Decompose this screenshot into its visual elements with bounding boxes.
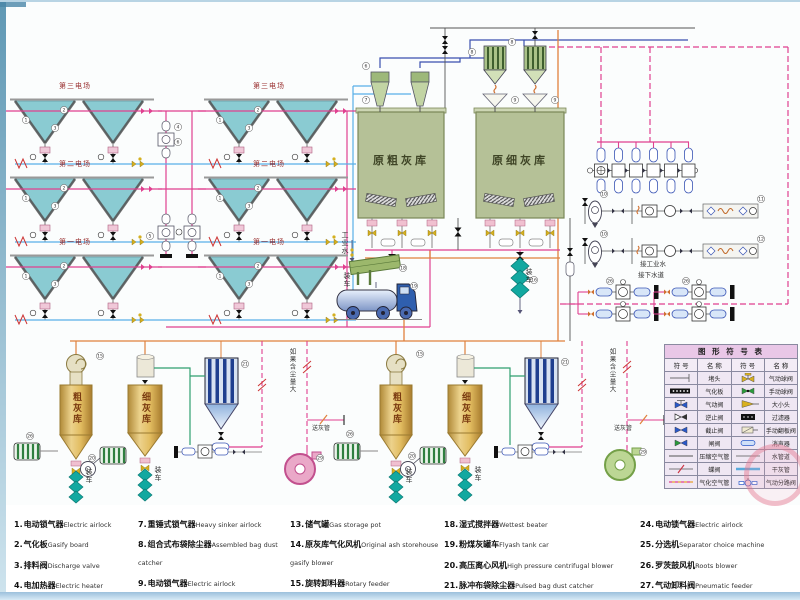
label-load-1: 装车	[84, 468, 94, 484]
manual-flap-valve-symbol	[731, 424, 764, 437]
equipment-list-col-5: 24.电动锁气器Electric airlock25.分选机Separator …	[640, 513, 798, 600]
label-coarse-bin-1: 粗灰库	[70, 392, 83, 425]
svg-text:11: 11	[758, 197, 764, 203]
pneumatic-valve-symbol	[665, 398, 698, 411]
svg-text:1: 1	[25, 196, 28, 202]
equipment-list-item: 7.重锤式锁气器Heavy sinker airlock	[138, 513, 288, 531]
equipment-list-item: 10罗茨真空泵Roots vacuum pump	[138, 592, 288, 600]
equipment-list-item: 18.湿式搅拌器Wettest beater	[444, 513, 638, 531]
equipment-list-item: 22.旋转供料器Rotary feeder	[444, 595, 638, 600]
equipment-list-item: 3.排料阀Discharge valve	[14, 554, 134, 572]
svg-text:21: 21	[242, 362, 248, 368]
svg-text:1: 1	[219, 274, 222, 280]
equipment-list-item: 1.电动锁气器Electric airlock	[14, 513, 134, 531]
compressed-air-pipe-symbol	[665, 450, 698, 463]
legend-name: 手动翻板阀	[764, 424, 797, 437]
equipment-list-item: 8.组合式布袋除尘器Assembled bag dust catcher	[138, 533, 288, 569]
equipment-list-col-3: 13.储气罐Gas storage pot14.原灰库气化风机Original …	[290, 513, 442, 600]
label-fine-bin-1: 细灰库	[139, 392, 152, 425]
legend-title: 图 形 符 号 表	[665, 345, 798, 359]
manual-ball-valve-symbol	[731, 385, 764, 398]
flow-diagram-page: 1231231231231231234566789891819161011101…	[0, 0, 800, 600]
equipment-list-item: 16.干灰散装机Dry ash bulk machine	[290, 592, 442, 600]
svg-text:1: 1	[25, 274, 28, 280]
svg-text:3: 3	[54, 204, 57, 210]
equipment-list-item: 15.旋转卸料器Rotary feeder	[290, 572, 442, 590]
label-field1-a3: 第一电场	[45, 237, 105, 247]
equipment-list-item: 24.电动锁气器Electric airlock	[640, 513, 798, 531]
legend-name: 气化空气管	[698, 476, 731, 489]
svg-text:12: 12	[758, 237, 764, 243]
svg-text:10: 10	[601, 192, 607, 198]
legend-header-name-2: 名 称	[764, 359, 797, 372]
label-field1-b3: 第一电场	[239, 237, 299, 247]
legend-header-symbol-1: 符 号	[665, 359, 698, 372]
equipment-list-item: 2.气化板Gasify board	[14, 533, 134, 551]
svg-text:8: 8	[471, 50, 474, 56]
equipment-list-item: 9.电动锁气器Electric airlock	[138, 572, 288, 590]
legend-name: 压缩空气管	[698, 450, 731, 463]
check-valve-symbol	[665, 411, 698, 424]
legend-name: 逆止阀	[698, 411, 731, 424]
label-connect-water: 接工业水	[640, 258, 666, 268]
equipment-list-item: 5.灰斗气化风机Ash gasify blower	[14, 595, 134, 600]
label-fine-bin-2: 细灰库	[459, 392, 472, 425]
svg-text:19: 19	[411, 284, 417, 290]
svg-text:20: 20	[89, 456, 95, 462]
equipment-list-col-1: 1.电动锁气器Electric airlock2.气化板Gasify board…	[14, 513, 134, 600]
svg-text:3: 3	[54, 282, 57, 288]
equipment-list-item: 19.粉煤灰罐车Flyash tank car	[444, 533, 638, 551]
svg-text:1: 1	[219, 196, 222, 202]
legend-name: 蝶阀	[698, 463, 731, 476]
label-field3-a1: 第三电场	[45, 81, 105, 91]
svg-text:1: 1	[25, 118, 28, 124]
svg-text:9: 9	[554, 98, 557, 104]
label-load-2: 装车	[153, 466, 163, 482]
equipment-list-item: 26.罗茨鼓风机Roots blower	[640, 554, 798, 572]
stop-valve-symbol	[665, 424, 698, 437]
legend-name: 大小头	[764, 398, 797, 411]
svg-text:2: 2	[257, 108, 260, 114]
label-coarse-store: 原粗灰库	[359, 152, 443, 168]
gasify-air-pipe-symbol	[665, 476, 698, 489]
pneumatic-ball-valve-symbol	[731, 372, 764, 385]
gate-valve-symbol	[665, 437, 698, 450]
svg-text:1: 1	[219, 118, 222, 124]
svg-text:6: 6	[365, 64, 368, 70]
svg-text:26: 26	[683, 279, 689, 285]
legend-name: 手动球阀	[764, 385, 797, 398]
reducer-symbol	[731, 398, 764, 411]
svg-text:2: 2	[257, 186, 260, 192]
svg-text:3: 3	[248, 282, 251, 288]
equipment-list-item: 25.分选机Separator choice machine	[640, 533, 798, 551]
legend-name: 过滤器	[764, 411, 797, 424]
equipment-list-item: 13.储气罐Gas storage pot	[290, 513, 442, 531]
svg-text:2: 2	[63, 186, 66, 192]
svg-text:15: 15	[97, 354, 103, 360]
equipment-list-col-4: 18.湿式搅拌器Wettest beater19.粉煤灰罐车Flyash tan…	[444, 513, 638, 600]
equipment-list-item: 20.高压离心风机High pressure centrifugal blowe…	[444, 554, 638, 572]
svg-text:29: 29	[317, 456, 323, 462]
svg-text:6: 6	[177, 140, 180, 146]
svg-text:26: 26	[607, 279, 613, 285]
legend-header-name-1: 名 称	[698, 359, 731, 372]
svg-text:21: 21	[562, 360, 568, 366]
label-load-3: 装车	[404, 468, 414, 484]
svg-text:2: 2	[63, 108, 66, 114]
label-load-4: 装车	[473, 466, 483, 482]
svg-text:10: 10	[601, 232, 607, 238]
label-fine-store: 原细灰库	[478, 152, 562, 168]
svg-text:20: 20	[409, 454, 415, 460]
gasify-board-symbol	[665, 385, 698, 398]
svg-text:29: 29	[640, 450, 646, 456]
legend-name: 气化板	[698, 385, 731, 398]
legend-name: 气动阀	[698, 398, 731, 411]
svg-text:18: 18	[400, 266, 406, 272]
svg-text:15: 15	[417, 352, 423, 358]
label-load-truck-1: 装车	[342, 272, 352, 288]
legend-header-symbol-2: 符 号	[731, 359, 764, 372]
label-ash-pipe-2: 送灰管	[614, 423, 632, 432]
label-load-truck-2: 装车	[524, 268, 534, 284]
svg-text:9: 9	[514, 98, 517, 104]
equipment-list-item: 27.气动卸料阀Pneumatic feeder	[640, 574, 798, 592]
equipment-list-item: 4.电加热器Electric heater	[14, 574, 134, 592]
svg-text:2: 2	[257, 264, 260, 270]
svg-text:26: 26	[347, 432, 353, 438]
svg-text:7: 7	[365, 98, 368, 104]
butterfly-valve-symbol	[665, 463, 698, 476]
svg-text:26: 26	[27, 434, 33, 440]
label-field3-b1: 第三电场	[239, 81, 299, 91]
label-industrial-water: 工业水	[340, 231, 350, 255]
svg-text:8: 8	[511, 40, 514, 46]
legend-name: 截止阀	[698, 424, 731, 437]
equipment-list-item: 28.袋式过滤器Bag filter	[640, 595, 798, 600]
svg-text:5: 5	[149, 234, 152, 240]
plug-symbol	[665, 372, 698, 385]
label-field2-a2: 第二电场	[45, 159, 105, 169]
label-field2-b2: 第二电场	[239, 159, 299, 169]
svg-text:3: 3	[54, 126, 57, 132]
red-stamp-artifact	[744, 444, 800, 506]
equipment-list-col-2: 7.重锤式锁气器Heavy sinker airlock8.组合式布袋除尘器As…	[138, 513, 288, 600]
svg-text:2: 2	[63, 264, 66, 270]
equipment-list-item: 21.脉冲布袋除尘器Pulsed bag dust catcher	[444, 574, 638, 592]
legend-name: 堵头	[698, 372, 731, 385]
filter-symbol	[731, 411, 764, 424]
label-connect-sewer: 接下水道	[638, 269, 664, 279]
equipment-list-item: 14.原灰库气化风机Original ash storehouse gasify…	[290, 533, 442, 569]
label-ash-pipe-1: 送灰管	[312, 423, 330, 432]
legend-name: 闸阀	[698, 437, 731, 450]
legend-name: 气动球阀	[764, 372, 797, 385]
label-if-dust-2: 如果含尘量大	[607, 348, 617, 393]
label-coarse-bin-2: 粗灰库	[390, 392, 403, 425]
label-if-dust-1: 如果含尘量大	[287, 348, 297, 393]
svg-text:3: 3	[248, 204, 251, 210]
svg-text:3: 3	[248, 126, 251, 132]
equipment-legend-list: 1.电动锁气器Electric airlock2.气化板Gasify board…	[0, 505, 800, 592]
svg-text:4: 4	[177, 125, 180, 131]
